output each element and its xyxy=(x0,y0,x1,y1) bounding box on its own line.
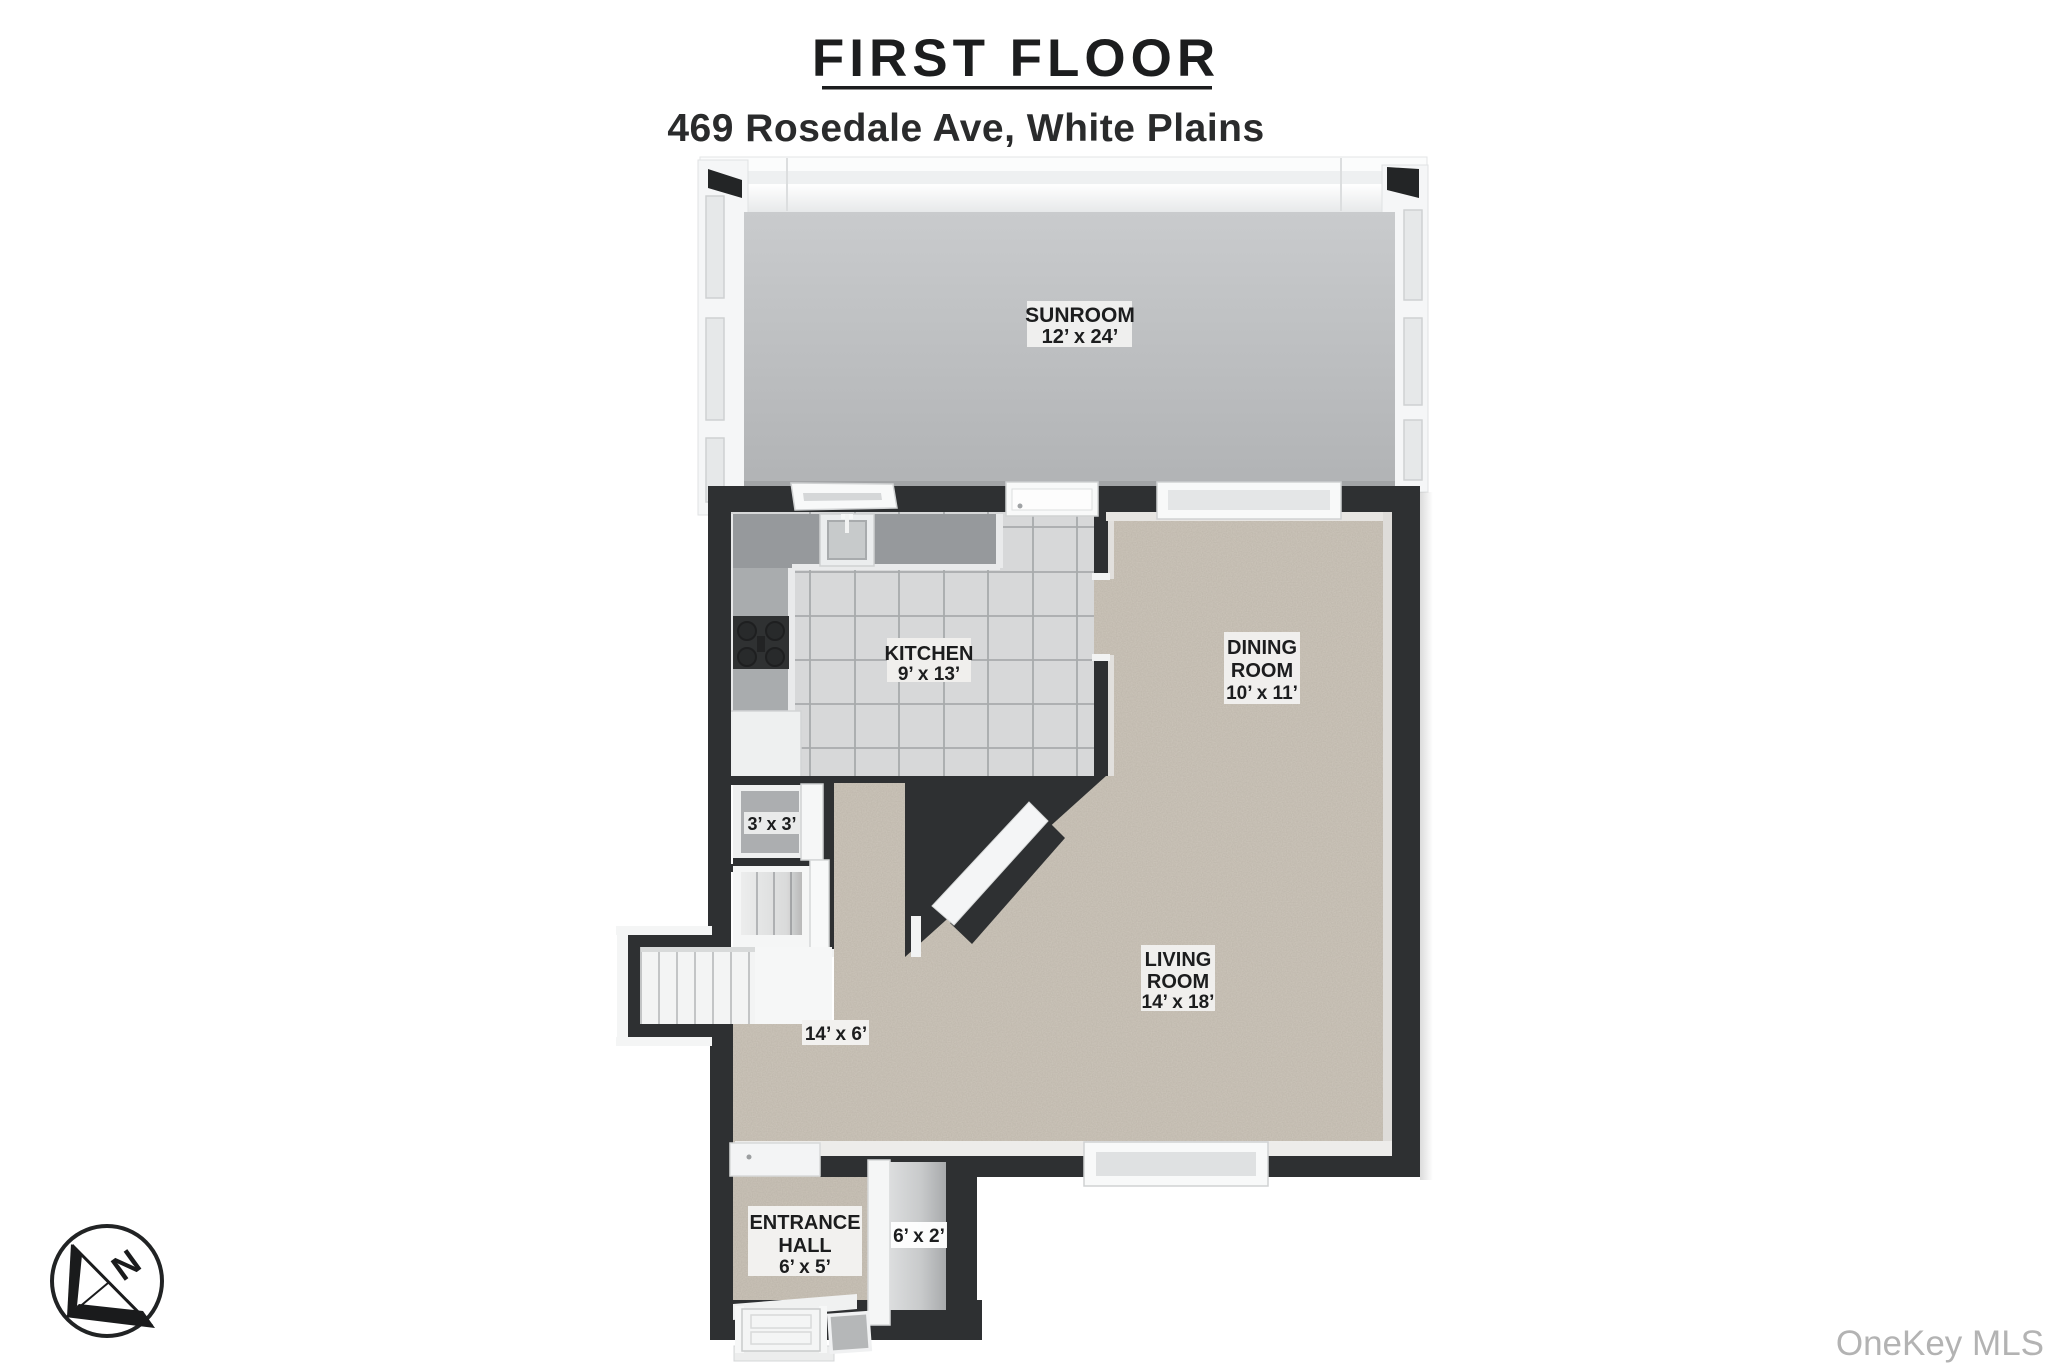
svg-text:6’ x 5’: 6’ x 5’ xyxy=(779,1257,831,1278)
svg-text:6’ x 2’: 6’ x 2’ xyxy=(893,1226,945,1247)
svg-text:10’ x 11’: 10’ x 11’ xyxy=(1226,683,1298,704)
svg-text:12’ x 24’: 12’ x 24’ xyxy=(1042,326,1119,348)
svg-text:KITCHEN: KITCHEN xyxy=(885,643,974,665)
svg-text:ENTRANCE: ENTRANCE xyxy=(749,1212,860,1234)
svg-text:3’ x 3’: 3’ x 3’ xyxy=(747,814,796,834)
svg-text:ROOM: ROOM xyxy=(1147,971,1209,993)
svg-text:LIVING: LIVING xyxy=(1145,949,1212,971)
svg-text:DINING: DINING xyxy=(1227,637,1297,659)
svg-text:OneKey MLS: OneKey MLS xyxy=(1836,1324,2044,1363)
svg-text:HALL: HALL xyxy=(778,1235,831,1257)
svg-text:9’ x 13’: 9’ x 13’ xyxy=(898,664,960,685)
svg-text:FIRST FLOOR: FIRST FLOOR xyxy=(812,29,1220,88)
svg-text:ROOM: ROOM xyxy=(1231,660,1293,682)
svg-text:14’ x 6’: 14’ x 6’ xyxy=(805,1024,867,1045)
svg-text:14’ x 18’: 14’ x 18’ xyxy=(1142,992,1215,1013)
svg-text:469 Rosedale Ave, White Plains: 469 Rosedale Ave, White Plains xyxy=(667,107,1264,150)
svg-text:SUNROOM: SUNROOM xyxy=(1025,304,1135,327)
